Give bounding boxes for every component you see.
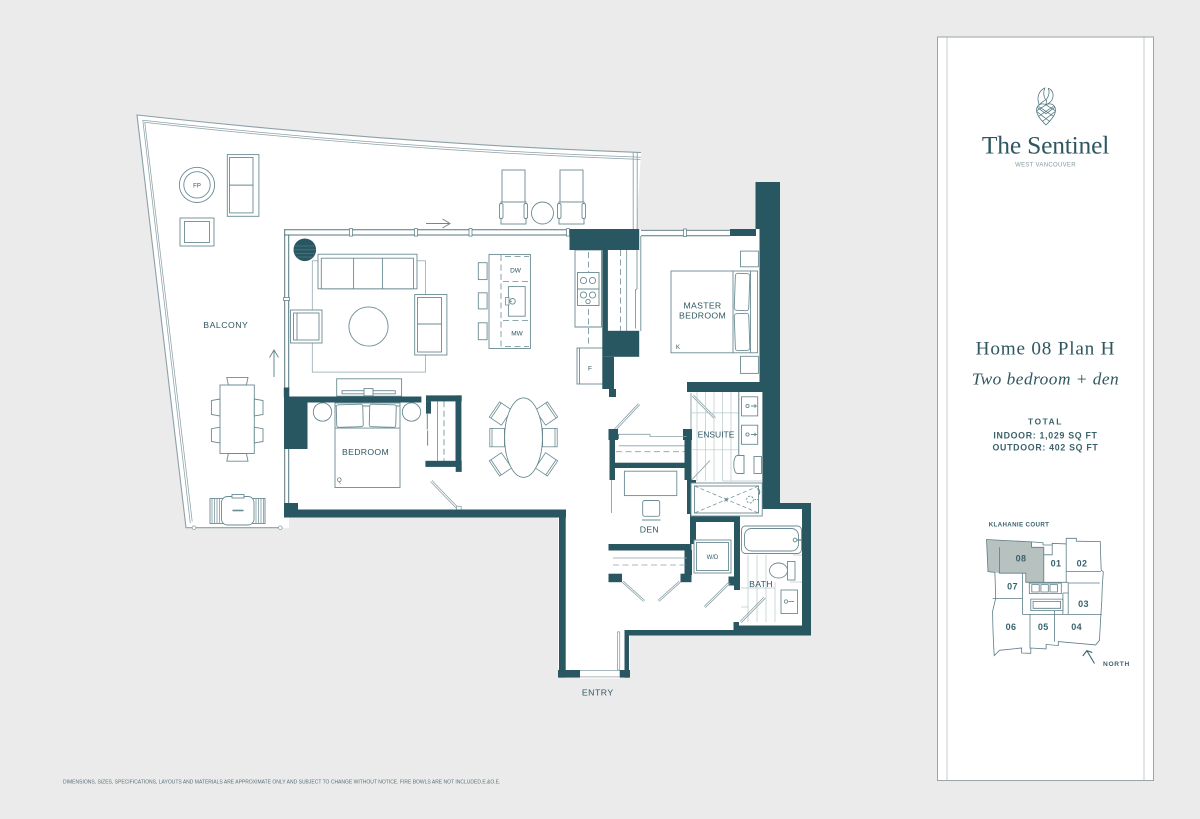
- svg-text:Home 08 Plan H: Home 08 Plan H: [976, 339, 1116, 360]
- svg-text:Q: Q: [337, 478, 342, 484]
- svg-text:WEST VANCOUVER: WEST VANCOUVER: [1015, 162, 1076, 168]
- svg-text:03: 03: [1078, 599, 1089, 609]
- svg-text:K: K: [676, 345, 680, 351]
- svg-text:DIMENSIONS, SIZES, SPECIFICATI: DIMENSIONS, SIZES, SPECIFICATIONS, LAYOU…: [63, 780, 500, 786]
- svg-text:ENTRY: ENTRY: [582, 688, 614, 698]
- svg-text:DW: DW: [510, 268, 522, 275]
- svg-text:BEDROOM: BEDROOM: [679, 311, 726, 321]
- svg-text:The Sentinel: The Sentinel: [982, 131, 1109, 160]
- svg-text:TOTAL: TOTAL: [1028, 417, 1063, 427]
- svg-text:KLAHANIE COURT: KLAHANIE COURT: [989, 522, 1050, 529]
- svg-text:05: 05: [1038, 622, 1049, 632]
- svg-text:BEDROOM: BEDROOM: [342, 447, 389, 457]
- svg-text:BALCONY: BALCONY: [203, 320, 248, 330]
- svg-text:06: 06: [1006, 622, 1017, 632]
- svg-text:04: 04: [1071, 622, 1082, 632]
- svg-text:FP: FP: [193, 184, 201, 190]
- svg-text:NORTH: NORTH: [1103, 661, 1130, 668]
- svg-text:DEN: DEN: [640, 525, 659, 535]
- svg-text:ENSUITE: ENSUITE: [698, 429, 735, 439]
- svg-text:F: F: [588, 366, 592, 373]
- svg-text:BATH: BATH: [749, 579, 773, 589]
- svg-text:07: 07: [1007, 582, 1018, 592]
- svg-text:W/D: W/D: [707, 555, 719, 561]
- svg-text:01: 01: [1051, 559, 1062, 569]
- svg-text:MW: MW: [511, 331, 523, 338]
- svg-text:02: 02: [1077, 559, 1088, 569]
- svg-text:OUTDOOR: 402 SQ FT: OUTDOOR: 402 SQ FT: [993, 442, 1099, 452]
- svg-text:INDOOR: 1,029 SQ FT: INDOOR: 1,029 SQ FT: [993, 430, 1097, 440]
- svg-text:Two bedroom + den: Two bedroom + den: [972, 370, 1119, 389]
- svg-text:08: 08: [1016, 554, 1027, 564]
- svg-text:MASTER: MASTER: [683, 300, 721, 310]
